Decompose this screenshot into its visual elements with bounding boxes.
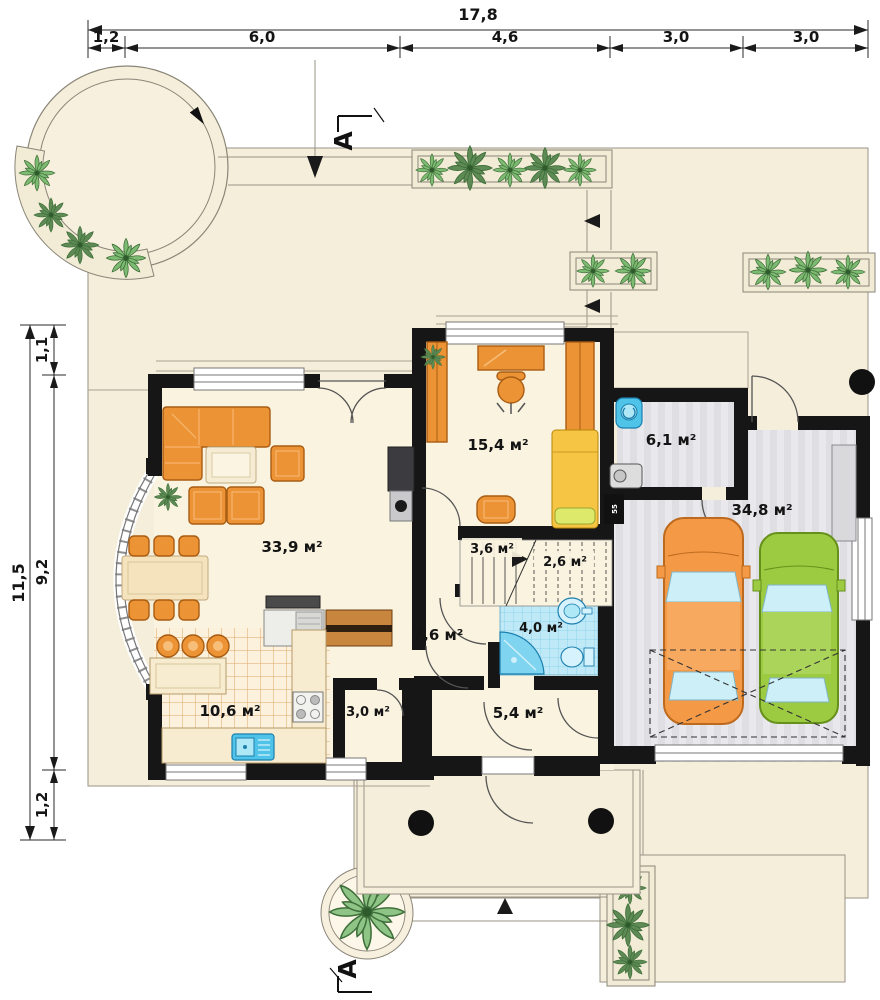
tv-unit <box>388 447 414 521</box>
label-stairs-upper: 2,6 м² <box>543 555 587 570</box>
armchair-2 <box>189 487 226 524</box>
utility-sink <box>616 398 642 428</box>
floor-plan-drawing: A A 17,8 1,2 6,0 4,6 3,0 3,0 11,5 1,1 9,… <box>0 0 880 1000</box>
label-hall: 7,6 м² <box>413 626 464 644</box>
label-entry: 5,4 м² <box>493 704 544 722</box>
office-side-chair <box>477 496 515 523</box>
label-living: 33,9 м² <box>261 538 322 556</box>
label-kitchen: 10,6 м² <box>199 702 260 720</box>
window-living-top <box>194 368 304 390</box>
porch-column-right <box>588 808 614 834</box>
office-wardrobe-right <box>566 342 594 434</box>
bar-stools <box>157 635 229 657</box>
car-orange <box>657 518 750 724</box>
dim-top-seg-0: 1,2 <box>93 28 120 46</box>
office-desk <box>478 346 544 370</box>
office-chair <box>497 372 525 414</box>
dimensions-top: 17,8 1,2 6,0 4,6 3,0 3,0 <box>88 5 868 58</box>
dim-left-seg-1: 9,2 <box>33 559 51 586</box>
front-door-sill <box>482 757 534 774</box>
utility-boiler <box>610 464 642 488</box>
dim-left-seg-0: 1,1 <box>33 337 51 364</box>
coffee-table <box>206 447 256 483</box>
garage-shelf <box>832 445 856 541</box>
entrance-porch <box>357 770 640 894</box>
section-marker-top: A <box>329 108 384 151</box>
kitchen-sink <box>232 734 274 760</box>
armchair-3 <box>227 487 264 524</box>
window-office-top <box>446 322 564 344</box>
garage-door <box>655 745 843 761</box>
dim-left-total: 11,5 <box>9 563 28 602</box>
office-plant <box>421 345 445 369</box>
porch-column-left <box>408 810 434 836</box>
dim-top-seg-1: 6,0 <box>249 28 276 46</box>
section-letter-top: A <box>329 131 358 151</box>
dim-top-total: 17,8 <box>458 5 497 24</box>
dim-top-seg-2: 4,6 <box>492 28 519 46</box>
label-stairs-lower: 3,6 м² <box>470 542 514 557</box>
section-letter-bottom: A <box>333 959 362 979</box>
car-green <box>753 533 845 723</box>
dining-table <box>122 556 208 600</box>
living-plant <box>154 483 181 510</box>
dim-top-seg-4: 3,0 <box>793 28 820 46</box>
armchair-1 <box>271 446 304 481</box>
label-office: 15,4 м² <box>467 436 528 454</box>
label-bathroom: 4,0 м² <box>519 621 563 636</box>
kitchen-sideboard <box>326 610 392 646</box>
garden-tree <box>849 369 875 395</box>
label-pantry: 3,0 м² <box>346 705 390 720</box>
section-marker-bottom: A <box>330 959 372 992</box>
dim-left-seg-2: 1,2 <box>33 792 51 819</box>
toilet <box>561 647 594 667</box>
radiator-tag: 55 <box>611 504 619 514</box>
walk-arrow-up <box>497 898 513 914</box>
dimensions-left: 11,5 1,1 9,2 1,2 <box>9 325 66 840</box>
bar-counter <box>150 658 226 694</box>
kitchen-shelf <box>266 596 320 608</box>
radiator-box: 55 <box>604 494 624 524</box>
label-utility: 6,1 м² <box>646 431 697 449</box>
window-kitchen-b <box>326 758 366 780</box>
kitchen-stove <box>293 692 323 722</box>
office-bed <box>552 430 598 528</box>
label-garage: 34,8 м² <box>731 501 792 519</box>
dim-top-seg-3: 3,0 <box>663 28 690 46</box>
floor-plan-canvas: A A 17,8 1,2 6,0 4,6 3,0 3,0 11,5 1,1 9,… <box>0 0 880 1000</box>
